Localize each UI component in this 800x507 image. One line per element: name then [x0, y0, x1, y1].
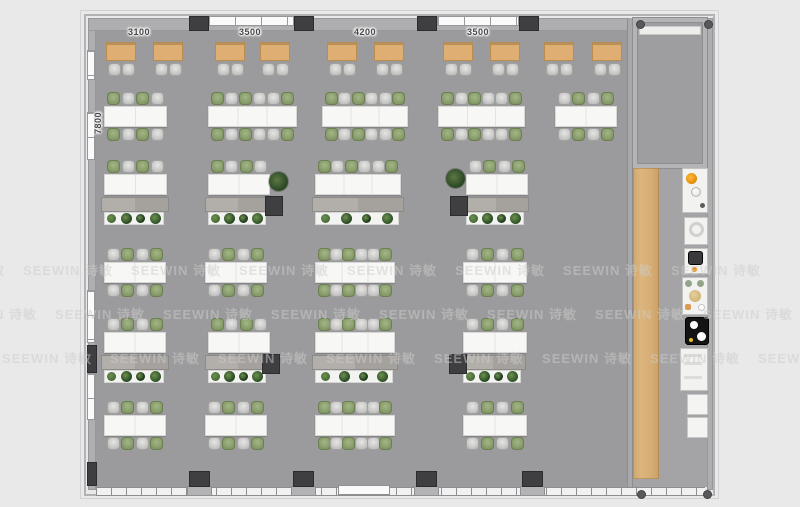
training-table — [592, 42, 622, 61]
workstation-desk — [555, 106, 617, 127]
chair — [466, 401, 479, 414]
watermark: SEEWIN 诗敏 — [542, 348, 632, 367]
storage-cabinet — [312, 197, 404, 212]
chair — [601, 92, 614, 105]
storage-cabinet — [463, 197, 529, 212]
planter-plant — [136, 214, 145, 223]
workstation-desk — [208, 174, 270, 195]
chair — [345, 160, 358, 173]
planter-plant — [121, 213, 132, 224]
chair — [558, 92, 571, 105]
chair — [208, 284, 221, 297]
watermark: SEEWIN 诗敏 — [379, 304, 469, 323]
chair — [108, 63, 121, 76]
chair — [587, 92, 600, 105]
chair — [222, 437, 235, 450]
training-table — [374, 42, 404, 61]
wall-corner-dot — [703, 490, 712, 499]
chair — [151, 160, 164, 173]
dimension-label-top: 3500 — [467, 27, 489, 37]
wall-corner-dot — [704, 20, 713, 29]
chair — [385, 160, 398, 173]
bottom-pillar-cap — [520, 486, 545, 496]
planter-plant — [150, 213, 161, 224]
workstation-desk — [104, 415, 166, 436]
chair — [107, 284, 120, 297]
planter-box — [104, 370, 164, 383]
planter-box — [104, 212, 164, 225]
watermark: SEEWIN 诗敏 — [671, 260, 761, 279]
watermark: SEEWIN 诗敏 — [239, 260, 329, 279]
chair — [496, 284, 509, 297]
workstation-desk — [438, 106, 525, 127]
chair — [483, 160, 496, 173]
watermark: SEEWIN 诗敏 — [434, 348, 524, 367]
watermark: SEEWIN 诗敏 — [218, 348, 308, 367]
left-wall-pillar — [87, 462, 97, 486]
small-plant-icon — [685, 280, 692, 287]
planter-plant — [224, 213, 235, 224]
chair — [338, 92, 351, 105]
chair — [222, 401, 235, 414]
chair — [390, 63, 403, 76]
chair — [372, 160, 385, 173]
dimension-label-top: 3100 — [128, 27, 150, 37]
chair — [496, 437, 509, 450]
watermark: SEEWIN 诗敏 — [110, 348, 200, 367]
chair — [211, 92, 224, 105]
chair — [107, 401, 120, 414]
chair — [318, 160, 331, 173]
chair — [572, 128, 585, 141]
training-table — [327, 42, 357, 61]
chair — [482, 92, 495, 105]
planter-plant — [321, 214, 330, 223]
chair — [594, 63, 607, 76]
chair — [466, 437, 479, 450]
storage-cabinet — [101, 197, 169, 212]
chair — [122, 92, 135, 105]
meeting-room-walls — [633, 18, 707, 168]
faucet-icon — [700, 203, 705, 208]
planter-plant — [107, 372, 116, 381]
chair — [121, 284, 134, 297]
planter-box — [208, 212, 266, 225]
planter-plant — [494, 372, 503, 381]
chair — [481, 437, 494, 450]
chair — [225, 160, 238, 173]
indicator-icon — [689, 338, 693, 342]
chair — [379, 92, 392, 105]
chair — [267, 92, 280, 105]
chair — [121, 401, 134, 414]
watermark: SEEWIN 诗敏 — [650, 348, 740, 367]
chair — [379, 284, 392, 297]
small-plant-icon — [697, 280, 704, 287]
dimension-label-top: 3500 — [239, 27, 261, 37]
planter-plant — [359, 372, 368, 381]
chair — [169, 63, 182, 76]
chair — [107, 128, 120, 141]
planter-box — [315, 370, 393, 383]
chair — [468, 128, 481, 141]
chair — [239, 128, 252, 141]
chair — [136, 128, 149, 141]
chair — [482, 128, 495, 141]
chair — [468, 92, 481, 105]
chair — [151, 92, 164, 105]
entry-door — [338, 485, 390, 495]
chair — [237, 437, 250, 450]
chair — [107, 92, 120, 105]
chair — [240, 160, 253, 173]
bottom-pillar-cap — [187, 486, 212, 496]
top-wall-pillar — [417, 16, 437, 31]
chair — [281, 92, 294, 105]
watermark: SEEWIN 诗敏 — [455, 260, 545, 279]
workstation-desk — [208, 106, 297, 127]
workstation-desk — [315, 415, 395, 436]
chair — [352, 128, 365, 141]
chair — [251, 284, 264, 297]
workstation-desk — [315, 174, 401, 195]
chair — [492, 63, 505, 76]
chair — [150, 284, 163, 297]
meeting-room-cabinet — [639, 26, 701, 35]
workstation-desk — [463, 415, 527, 436]
watermark: SEEWIN 诗敏 — [758, 348, 800, 367]
chair — [342, 284, 355, 297]
chair — [455, 92, 468, 105]
chair — [222, 284, 235, 297]
chair — [509, 92, 522, 105]
planter-plant — [252, 213, 263, 224]
chair — [254, 318, 267, 331]
chair — [262, 63, 275, 76]
chair — [121, 437, 134, 450]
chair — [150, 318, 163, 331]
stove-icon — [686, 173, 697, 184]
chair — [481, 284, 494, 297]
planter-plant — [107, 214, 116, 223]
chair — [136, 92, 149, 105]
chair — [342, 401, 355, 414]
chair — [511, 401, 524, 414]
chair — [459, 63, 472, 76]
top-window — [208, 16, 294, 26]
chair — [509, 128, 522, 141]
chair — [237, 401, 250, 414]
chair — [511, 437, 524, 450]
planter-plant — [341, 213, 352, 224]
workstation-desk — [466, 174, 528, 195]
chair — [495, 92, 508, 105]
left-window — [87, 373, 95, 420]
chair — [136, 160, 149, 173]
watermark: SEEWIN 诗敏 — [0, 304, 37, 323]
knob-icon — [690, 321, 698, 329]
watermark: SEEWIN 诗敏 — [23, 260, 113, 279]
chair — [136, 401, 149, 414]
watermark: SEEWIN 诗敏 — [55, 304, 145, 323]
watermark: SEEWIN 诗敏 — [487, 304, 577, 323]
chair — [455, 128, 468, 141]
planter-box — [315, 212, 399, 225]
chair — [150, 437, 163, 450]
knob-icon — [697, 332, 706, 341]
bottom-wall-pillar — [522, 471, 543, 487]
pantry-cabinet — [687, 417, 708, 438]
watermark: SEEWIN 诗敏 — [326, 348, 416, 367]
planter-plant — [507, 371, 518, 382]
chair — [122, 128, 135, 141]
chair — [466, 284, 479, 297]
chair — [352, 92, 365, 105]
chair — [342, 437, 355, 450]
chair — [253, 92, 266, 105]
planter-plant — [377, 371, 388, 382]
bottom-wall-pillar — [416, 471, 437, 487]
chair — [379, 437, 392, 450]
chair — [495, 128, 508, 141]
chair — [237, 284, 250, 297]
workstation-desk — [205, 415, 267, 436]
left-window — [87, 50, 95, 80]
planter-box — [208, 370, 266, 383]
chair — [211, 160, 224, 173]
chair — [379, 128, 392, 141]
planter-plant — [382, 213, 393, 224]
chair — [267, 128, 280, 141]
chair — [560, 63, 573, 76]
planter-plant — [482, 213, 493, 224]
chair — [441, 128, 454, 141]
chair — [601, 128, 614, 141]
watermark: SEEWIN 诗敏 — [595, 304, 685, 323]
chair — [150, 401, 163, 414]
chair — [365, 92, 378, 105]
chair — [358, 160, 371, 173]
chair — [338, 128, 351, 141]
interior-column — [265, 196, 283, 216]
training-table — [153, 42, 183, 61]
chair — [481, 401, 494, 414]
planter-plant — [211, 372, 220, 381]
chair — [208, 437, 221, 450]
office-floor-plan-canvas: 31003500420035007800SEEWIN 诗敏SEEWIN 诗敏SE… — [0, 0, 800, 507]
chair — [136, 284, 149, 297]
planter-plant — [150, 371, 161, 382]
planter-plant — [469, 214, 478, 223]
watermark: SEEWIN 诗敏 — [163, 304, 253, 323]
chair — [512, 160, 525, 173]
planter-plant — [510, 213, 521, 224]
chair — [329, 63, 342, 76]
planter-plant — [121, 371, 132, 382]
chair — [251, 401, 264, 414]
wall-corner-dot — [636, 20, 645, 29]
chair — [136, 437, 149, 450]
chair — [276, 63, 289, 76]
chair — [511, 284, 524, 297]
pantry-cabinet — [687, 394, 708, 415]
planter-plant — [239, 372, 248, 381]
chair — [379, 401, 392, 414]
bottom-pillar-cap — [291, 486, 316, 496]
chair — [107, 437, 120, 450]
bottom-wall-pillar — [293, 471, 314, 487]
shelf-mark — [684, 376, 702, 379]
chair — [392, 128, 405, 141]
chair — [225, 92, 238, 105]
watermark: SEEWIN 诗敏 — [271, 304, 361, 323]
interior-column — [450, 196, 468, 216]
chair — [506, 63, 519, 76]
planter-plant — [497, 214, 506, 223]
chair — [325, 128, 338, 141]
chair — [331, 160, 344, 173]
chair — [441, 92, 454, 105]
training-table — [443, 42, 473, 61]
chair — [253, 128, 266, 141]
potted-plant — [269, 172, 288, 191]
wall-corner-dot — [637, 490, 646, 499]
chair — [122, 160, 135, 173]
planter-plant — [321, 372, 330, 381]
chair — [325, 92, 338, 105]
planter-plant — [211, 214, 220, 223]
sink-icon — [691, 187, 701, 197]
chair — [222, 248, 235, 261]
planter-plant — [362, 214, 371, 223]
chair — [587, 128, 600, 141]
watermark: SEEWIN 诗敏 — [563, 260, 653, 279]
chair — [151, 128, 164, 141]
chair — [445, 63, 458, 76]
bottom-wall-pillar — [189, 471, 210, 487]
storage-cabinet — [205, 197, 271, 212]
watermark: SEEWIN 诗敏 — [131, 260, 221, 279]
training-table — [490, 42, 520, 61]
training-table — [544, 42, 574, 61]
kettle-icon — [685, 304, 691, 310]
top-wall-pillar — [519, 16, 539, 31]
chair — [469, 160, 482, 173]
tray-icon — [689, 290, 701, 302]
chair — [608, 63, 621, 76]
chair — [572, 92, 585, 105]
chair — [225, 128, 238, 141]
chair — [558, 128, 571, 141]
chair — [498, 160, 511, 173]
chair — [155, 63, 168, 76]
dimension-label-top: 4200 — [354, 27, 376, 37]
planter-plant — [339, 371, 350, 382]
workstation-desk — [322, 106, 408, 127]
toilet-bowl-icon — [689, 222, 704, 237]
chair — [365, 128, 378, 141]
training-table — [215, 42, 245, 61]
training-table — [260, 42, 290, 61]
watermark: SEEWIN 诗敏 — [0, 260, 5, 279]
planter-plant — [239, 214, 248, 223]
chair — [122, 63, 135, 76]
workstation-desk — [104, 106, 167, 127]
planter-plant — [479, 371, 490, 382]
chair — [251, 437, 264, 450]
top-window — [437, 16, 519, 26]
chair — [376, 63, 389, 76]
planter-plant — [224, 371, 235, 382]
chair — [254, 160, 267, 173]
chair — [392, 92, 405, 105]
watermark: SEEWIN 诗敏 — [2, 348, 92, 367]
planter-box — [466, 212, 524, 225]
planter-plant — [466, 372, 475, 381]
chair — [211, 128, 224, 141]
chair — [281, 128, 294, 141]
chair — [208, 401, 221, 414]
workstation-desk — [104, 174, 167, 195]
planter-plant — [136, 372, 145, 381]
wood-floor-strip — [633, 168, 659, 479]
chair — [239, 92, 252, 105]
chair — [546, 63, 559, 76]
planter-box — [463, 370, 521, 383]
watermark: SEEWIN 诗敏 — [347, 260, 437, 279]
potted-plant — [446, 169, 465, 188]
training-table — [106, 42, 136, 61]
bottom-pillar-cap — [414, 486, 439, 496]
chair — [231, 63, 244, 76]
chair — [343, 63, 356, 76]
watermark: SEEWIN 诗敏 — [703, 304, 793, 323]
top-wall-pillar — [189, 16, 209, 31]
chair — [217, 63, 230, 76]
chair — [107, 160, 120, 173]
top-wall-pillar — [294, 16, 314, 31]
dimension-label-left: 7800 — [93, 109, 105, 137]
chair — [496, 401, 509, 414]
